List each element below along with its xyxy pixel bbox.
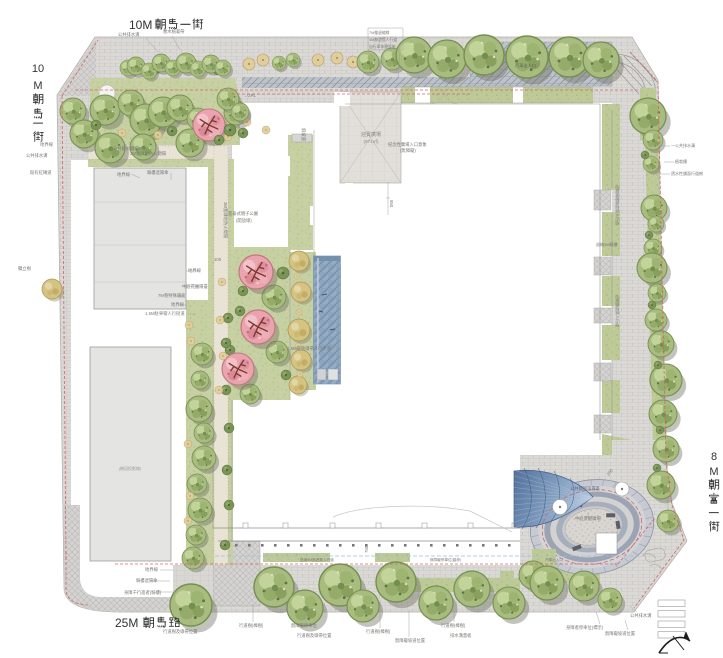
svg-text:4M無遮簷人行道: 4M無遮簷人行道 bbox=[369, 37, 397, 42]
svg-text:8: 8 bbox=[711, 451, 717, 463]
svg-text:25M: 25M bbox=[115, 616, 138, 630]
svg-text:1.5M緩衝綠帶人行步道: 1.5M緩衝綠帶人行步道 bbox=[287, 345, 332, 352]
svg-text:身障千行進者(騎樓): 身障千行進者(騎樓) bbox=[124, 589, 162, 596]
svg-text:透水性鋪面行道樹: 透水性鋪面行道樹 bbox=[671, 170, 703, 176]
svg-text:(樹冠投影線): (樹冠投影線) bbox=[119, 465, 142, 471]
svg-text:無障礙停車位: 無障礙停車位 bbox=[291, 622, 317, 629]
svg-text:既有紅磚道: 既有紅磚道 bbox=[30, 169, 52, 176]
svg-text:10M: 10M bbox=[129, 18, 152, 32]
svg-text:7M樓退縮線: 7M樓退縮線 bbox=[369, 30, 390, 35]
svg-text:斜坡道: 斜坡道 bbox=[300, 128, 307, 142]
svg-text:景泰式親子公園: 景泰式親子公園 bbox=[228, 210, 258, 217]
svg-text:M: M bbox=[33, 80, 42, 92]
svg-text:100: 100 bbox=[214, 257, 222, 262]
svg-text:地界線: 地界線 bbox=[171, 301, 185, 308]
svg-text:無障礙坡道位置: 無障礙坡道位置 bbox=[395, 637, 426, 644]
svg-text:退縮5M騎樓: 退縮5M騎樓 bbox=[596, 241, 618, 247]
svg-text:1.5M駐車彎人行街道: 1.5M駐車彎人行街道 bbox=[145, 310, 185, 317]
svg-text:退縮4M無遮簷人行道: 退縮4M無遮簷人行道 bbox=[300, 557, 334, 562]
svg-text:一公共排水溝: 一公共排水溝 bbox=[671, 142, 695, 148]
svg-text:公共排水溝: 公共排水溝 bbox=[118, 31, 140, 38]
svg-text:中庭景觀廣場: 中庭景觀廣場 bbox=[575, 515, 601, 522]
svg-text:地界線: 地界線 bbox=[145, 566, 159, 573]
svg-text:迎賓廣場: 迎賓廣場 bbox=[361, 131, 381, 138]
svg-text:3M寬綠地防火間隔: 3M寬綠地防火間隔 bbox=[130, 150, 167, 157]
svg-text:地界線: 地界線 bbox=[117, 171, 131, 178]
svg-text:行道樹(樟樹): 行道樹(樟樹) bbox=[366, 628, 391, 635]
svg-text:M: M bbox=[709, 466, 718, 478]
svg-text:騎樓遮陽傘: 騎樓遮陽傘 bbox=[147, 169, 169, 176]
svg-text:850: 850 bbox=[389, 200, 394, 208]
svg-text:10: 10 bbox=[32, 63, 44, 75]
svg-text:無障礙停車位(臨停): 無障礙停車位(臨停) bbox=[430, 557, 461, 562]
svg-text:行道樹及綠帶位置: 行道樹及綠帶位置 bbox=[297, 632, 332, 639]
svg-text:行道樹(樟樹): 行道樹(樟樹) bbox=[441, 622, 466, 629]
svg-text:自行車休憩設施: 自行車休憩設施 bbox=[369, 44, 396, 49]
svg-text:退縮騎樓無遮簷人行道: 退縮騎樓無遮簷人行道 bbox=[615, 185, 621, 225]
svg-text:地界線: 地界線 bbox=[40, 141, 54, 148]
svg-text:汽車出入口: 汽車出入口 bbox=[545, 557, 563, 562]
svg-text:7M巷特殊鋪面: 7M巷特殊鋪面 bbox=[158, 292, 186, 299]
svg-text:喬木植栽帶: 喬木植栽帶 bbox=[163, 28, 185, 35]
svg-text:獨立樹: 獨立樹 bbox=[18, 265, 32, 272]
svg-text:地界線: 地界線 bbox=[188, 267, 202, 274]
svg-text:身障者停車位(標示): 身障者停車位(標示) bbox=[566, 624, 604, 631]
svg-text:排水溝蓋板: 排水溝蓋板 bbox=[450, 632, 472, 639]
svg-text:公共排水溝: 公共排水溝 bbox=[630, 612, 652, 619]
svg-text:750: 750 bbox=[364, 545, 369, 553]
svg-text:(開放綠): (開放綠) bbox=[236, 217, 252, 224]
svg-text:植栽槽: 植栽槽 bbox=[675, 158, 687, 164]
svg-text:騎樓遮陽傘: 騎樓遮陽傘 bbox=[136, 577, 158, 584]
svg-text:(971㎡): (971㎡) bbox=[363, 138, 379, 144]
svg-text:行道樹及綠帶位置: 行道樹及綠帶位置 bbox=[163, 628, 198, 635]
svg-text:無障礙坡道位置: 無障礙坡道位置 bbox=[605, 630, 636, 637]
svg-text:公共排水溝: 公共排水溝 bbox=[26, 152, 48, 159]
svg-text:公共藝術設置區: 公共藝術設置區 bbox=[570, 485, 601, 492]
svg-text:紀念性廣場入口意象: 紀念性廣場入口意象 bbox=[388, 141, 427, 148]
svg-text:(無障礙): (無障礙) bbox=[400, 147, 416, 154]
svg-text:→GPL: →GPL bbox=[243, 93, 257, 98]
svg-text:退縮無遮簷人行道: 退縮無遮簷人行道 bbox=[615, 295, 621, 327]
svg-text:汽車出入口: 汽車出入口 bbox=[515, 62, 536, 69]
svg-text:3M寬綠地防火間隔: 3M寬綠地防火間隔 bbox=[222, 202, 229, 239]
svg-text:行道樹(樟樹): 行道樹(樟樹) bbox=[239, 622, 264, 629]
svg-text:中庭花園陽臺: 中庭花園陽臺 bbox=[182, 283, 208, 290]
